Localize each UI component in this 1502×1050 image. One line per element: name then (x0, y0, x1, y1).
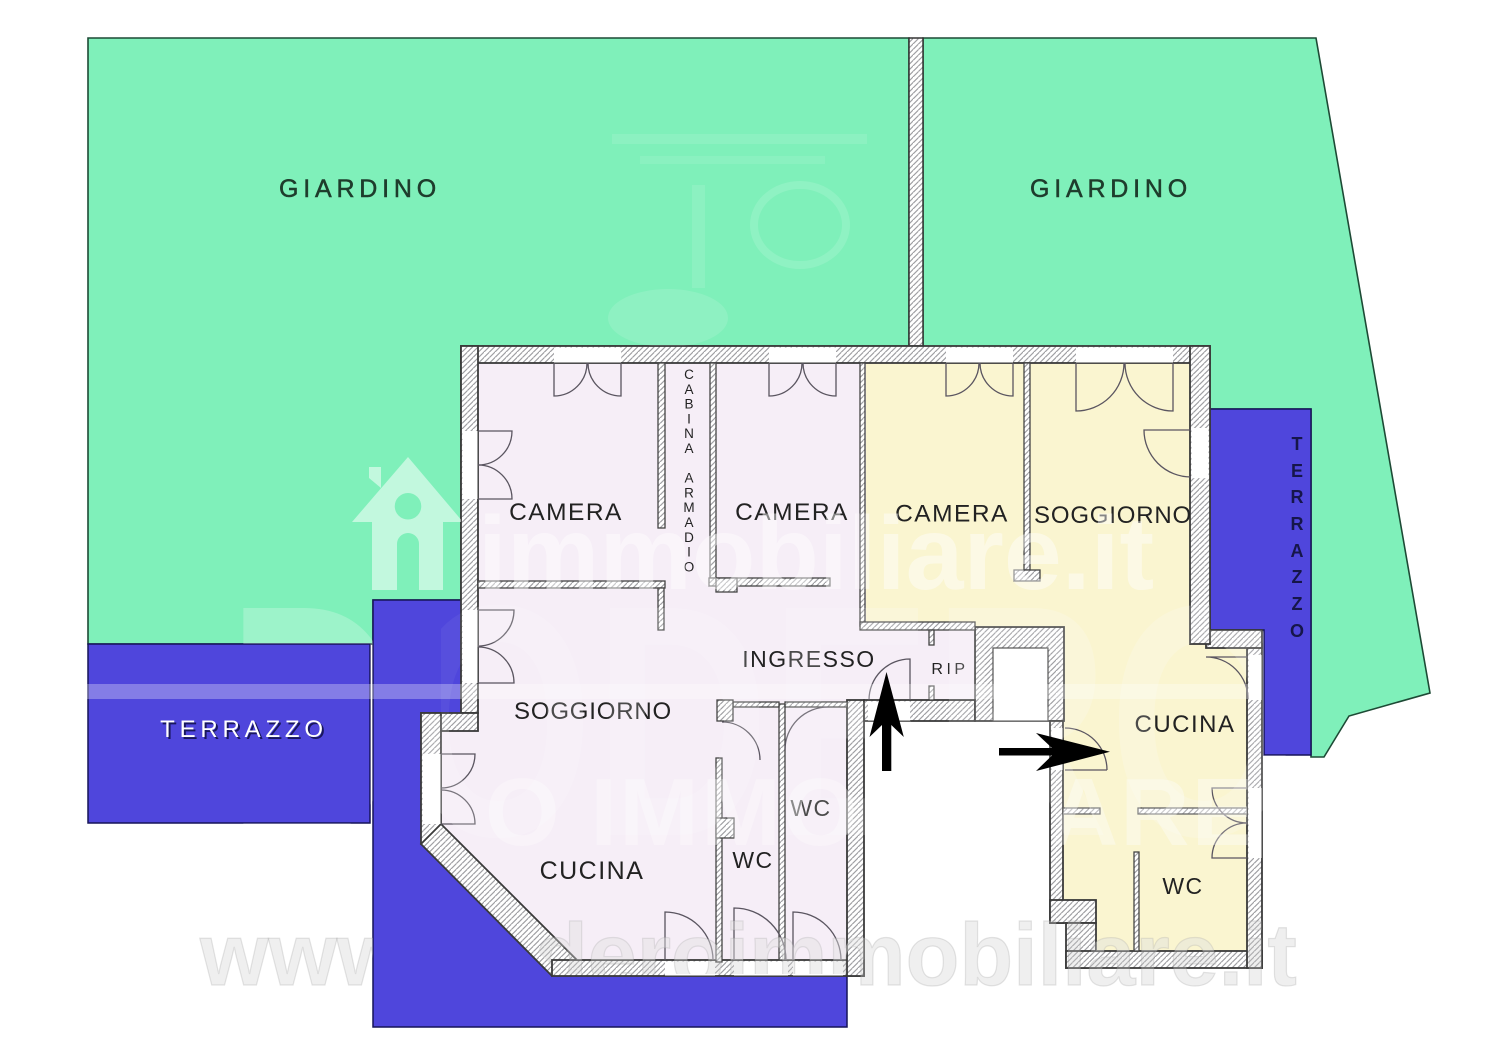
svg-text:E: E (1291, 461, 1303, 481)
svg-text:N: N (684, 426, 694, 441)
svg-text:A: A (684, 441, 693, 456)
svg-text:B: B (684, 397, 693, 412)
svg-text:TERRAZZO: TERRAZZO (160, 716, 328, 743)
svg-text:I: I (687, 411, 691, 426)
svg-text:R: R (1291, 487, 1304, 507)
svg-text:A: A (684, 382, 693, 397)
svg-text:GIARDINO: GIARDINO (1030, 175, 1192, 203)
svg-text:Z: Z (1292, 567, 1303, 587)
svg-text:R: R (1291, 514, 1304, 534)
svg-text:GIARDINO: GIARDINO (279, 175, 441, 203)
svg-text:C: C (684, 367, 694, 382)
svg-text:Z: Z (1292, 594, 1303, 614)
svg-text:A: A (1291, 541, 1304, 561)
svg-text:A: A (684, 471, 693, 486)
svg-text:T: T (1292, 434, 1303, 454)
svg-text:O: O (1290, 621, 1304, 641)
